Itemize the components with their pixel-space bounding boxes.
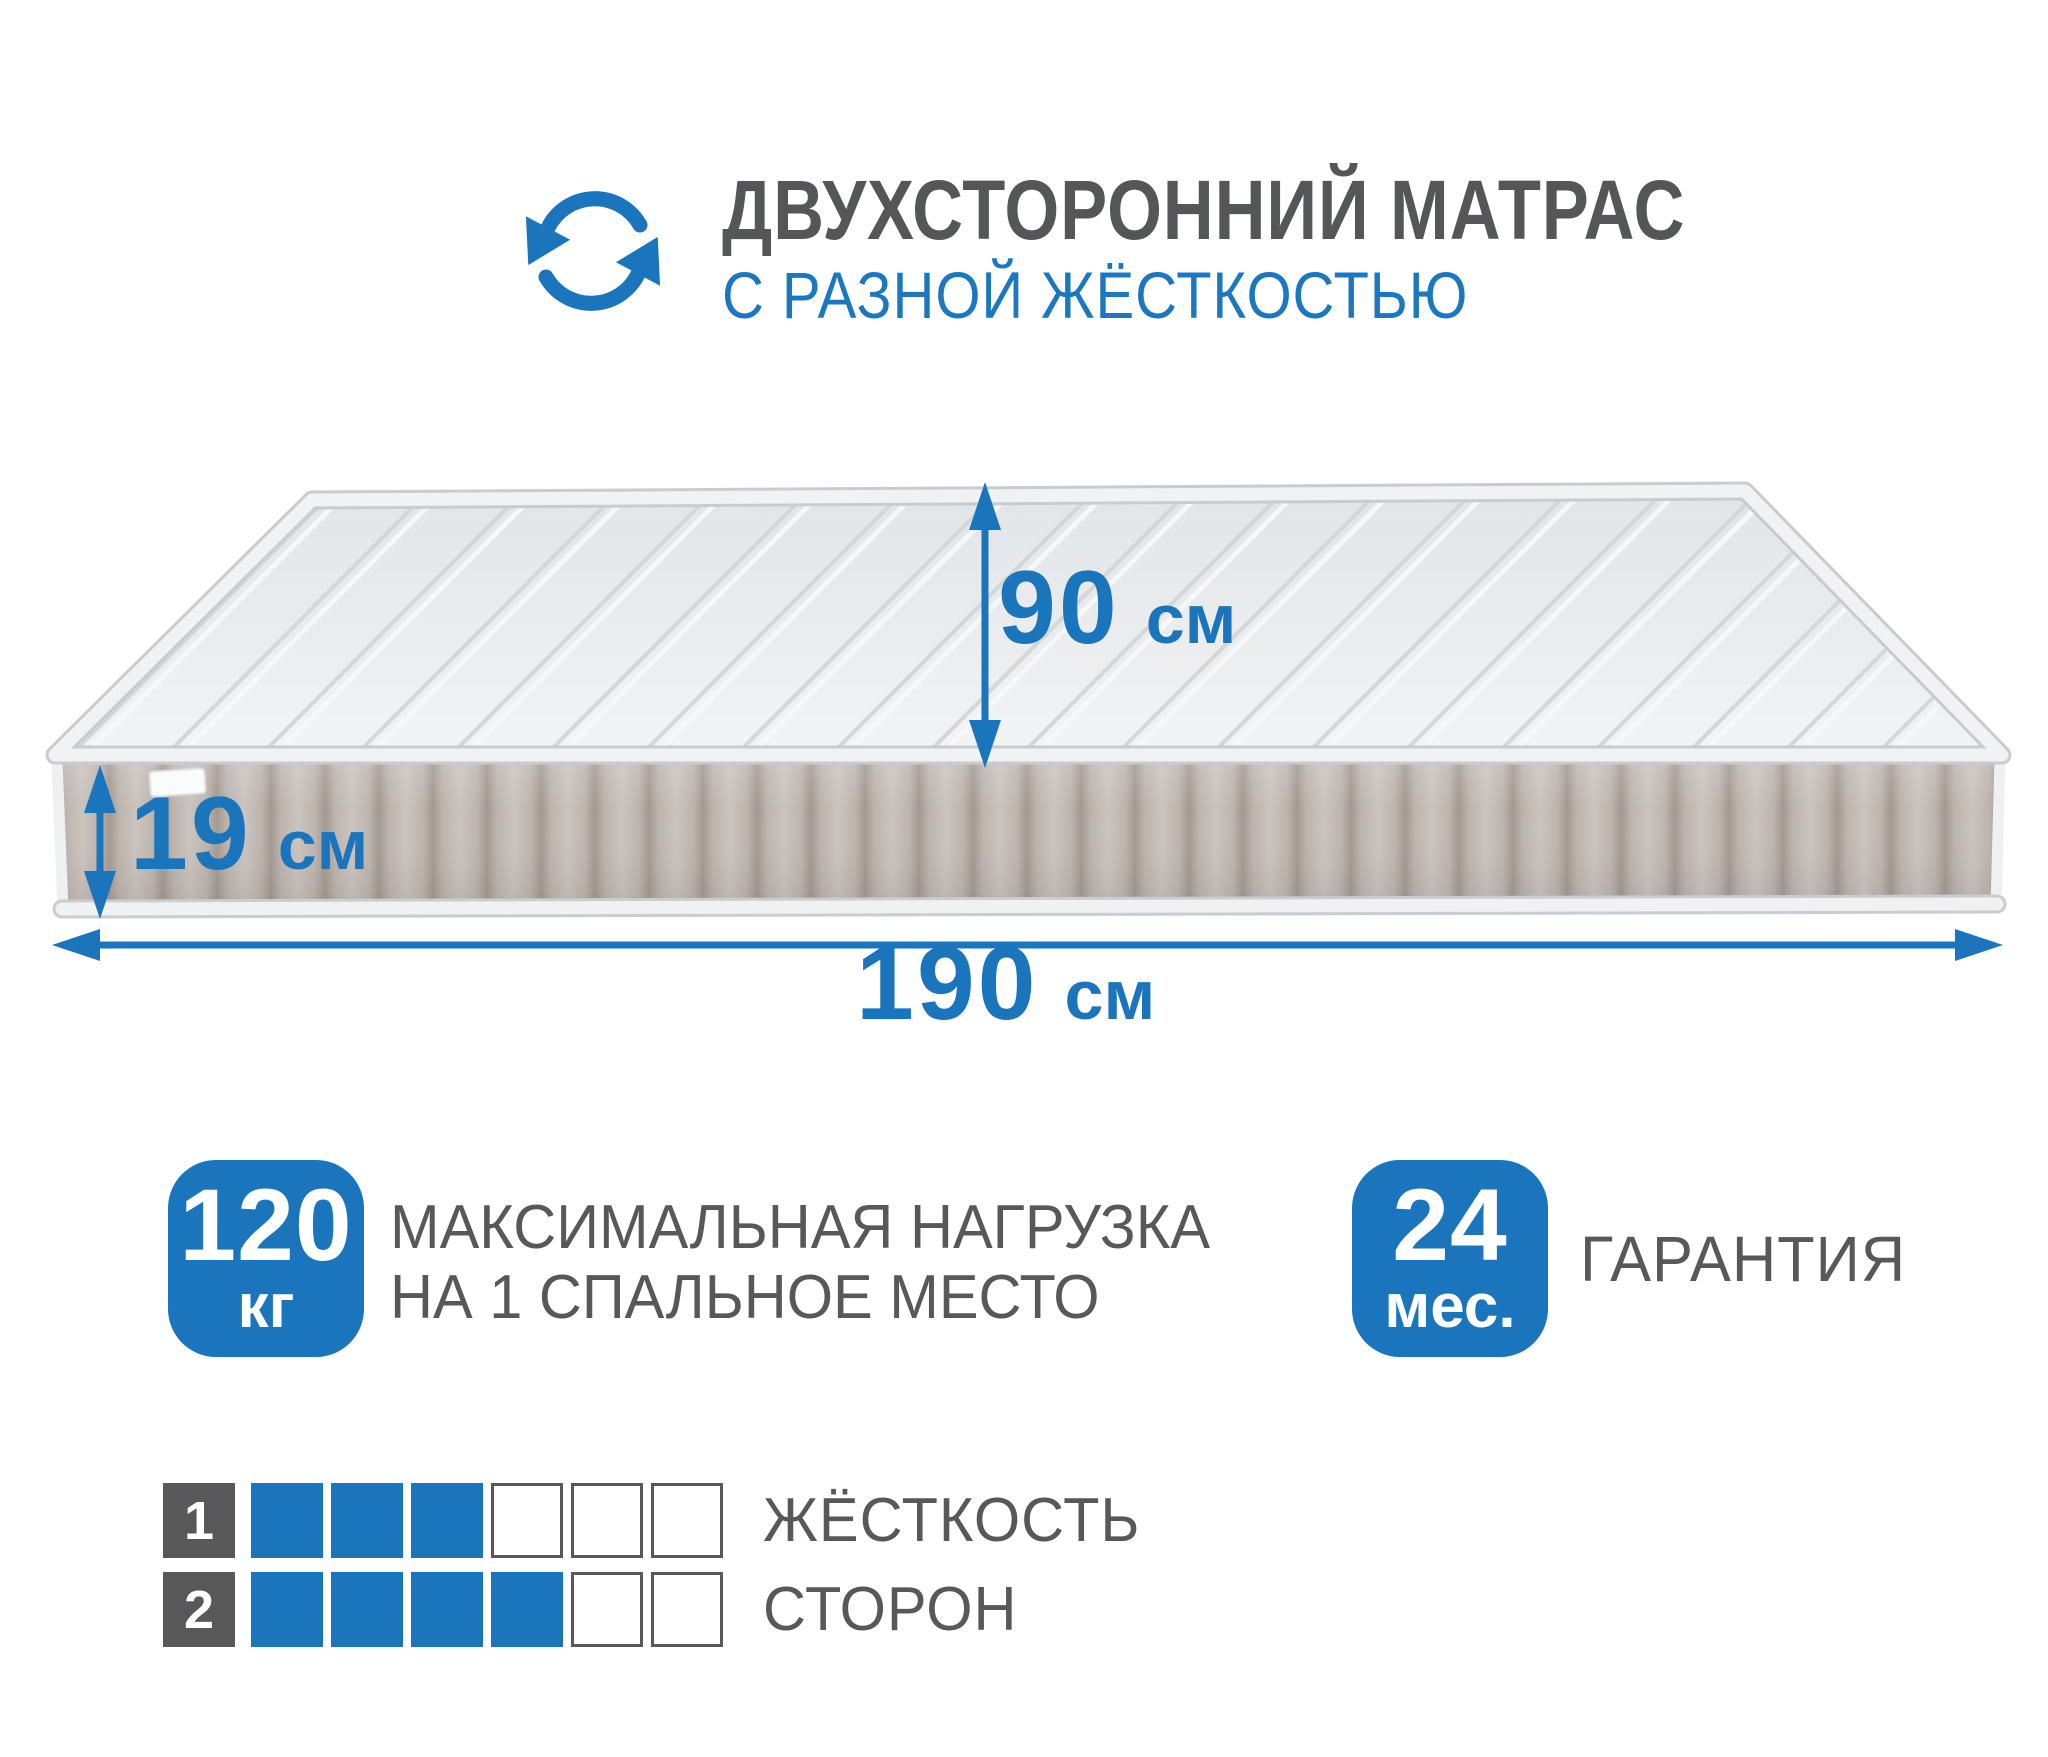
- rotate-bottom-arc: [546, 274, 638, 303]
- warranty-unit: мес.: [1384, 1276, 1515, 1338]
- firmness-caption-line2: СТОРОН: [763, 1572, 1017, 1647]
- warranty-description: ГАРАНТИЯ: [1580, 1160, 1906, 1357]
- firmness-cell-empty: [491, 1483, 563, 1558]
- mattress-bottom-piping: [62, 904, 1997, 909]
- firmness-side1-cells: [251, 1483, 723, 1558]
- mattress-top-surface: [55, 491, 2002, 755]
- warranty-value: 24: [1392, 1179, 1507, 1273]
- firmness-side2-label: 2: [163, 1572, 235, 1647]
- page-subtitle: С РАЗНОЙ ЖЁСТКОСТЬЮ: [722, 262, 1468, 328]
- firmness-cell-filled: [331, 1572, 403, 1647]
- firmness-cell-filled: [251, 1483, 323, 1558]
- max-load-description-line1: МАКСИМАЛЬНАЯ НАГРУЗКА: [390, 1193, 1210, 1263]
- firmness-row-side2: 2: [163, 1572, 723, 1647]
- max-load-badge: 120 кг: [168, 1160, 364, 1357]
- mattress-illustration: [0, 420, 2048, 1060]
- mattress-right-corner-piping: [1996, 758, 2000, 906]
- firmness-cell-empty: [651, 1483, 723, 1558]
- mattress-tag: [149, 768, 206, 797]
- arrow-length-right-head: [1955, 929, 2003, 961]
- mattress-left-corner-piping: [57, 760, 63, 910]
- firmness-cell-empty: [651, 1572, 723, 1647]
- firmness-cell-empty: [571, 1572, 643, 1647]
- rotate-arrows-icon: [518, 176, 668, 326]
- firmness-row-side1: 1: [163, 1483, 723, 1558]
- firmness-cell-filled: [411, 1572, 483, 1647]
- firmness-cell-filled: [331, 1483, 403, 1558]
- firmness-side2-cells: [251, 1572, 723, 1647]
- firmness-cell-empty: [571, 1483, 643, 1558]
- firmness-cell-filled: [251, 1572, 323, 1647]
- max-load-value: 120: [179, 1179, 352, 1273]
- warranty-badge: 24 мес.: [1352, 1160, 1548, 1357]
- max-load-unit: кг: [238, 1276, 295, 1338]
- max-load-description-line2: НА 1 СПАЛЬНОЕ МЕСТО: [390, 1263, 1210, 1333]
- firmness-scale: 1 2: [163, 1483, 723, 1661]
- firmness-side1-label: 1: [163, 1483, 235, 1558]
- firmness-caption-line1: ЖЁСТКОСТЬ: [763, 1483, 1140, 1558]
- max-load-description: МАКСИМАЛЬНАЯ НАГРУЗКА НА 1 СПАЛЬНОЕ МЕСТ…: [390, 1193, 1210, 1333]
- firmness-cell-filled: [491, 1572, 563, 1647]
- arrow-length-left-head: [52, 929, 100, 961]
- rotate-top-arc: [548, 199, 640, 228]
- firmness-cell-filled: [411, 1483, 483, 1558]
- mattress-side-shading: [55, 754, 2002, 913]
- page-title: ДВУХСТОРОННИЙ МАТРАС: [722, 168, 1685, 252]
